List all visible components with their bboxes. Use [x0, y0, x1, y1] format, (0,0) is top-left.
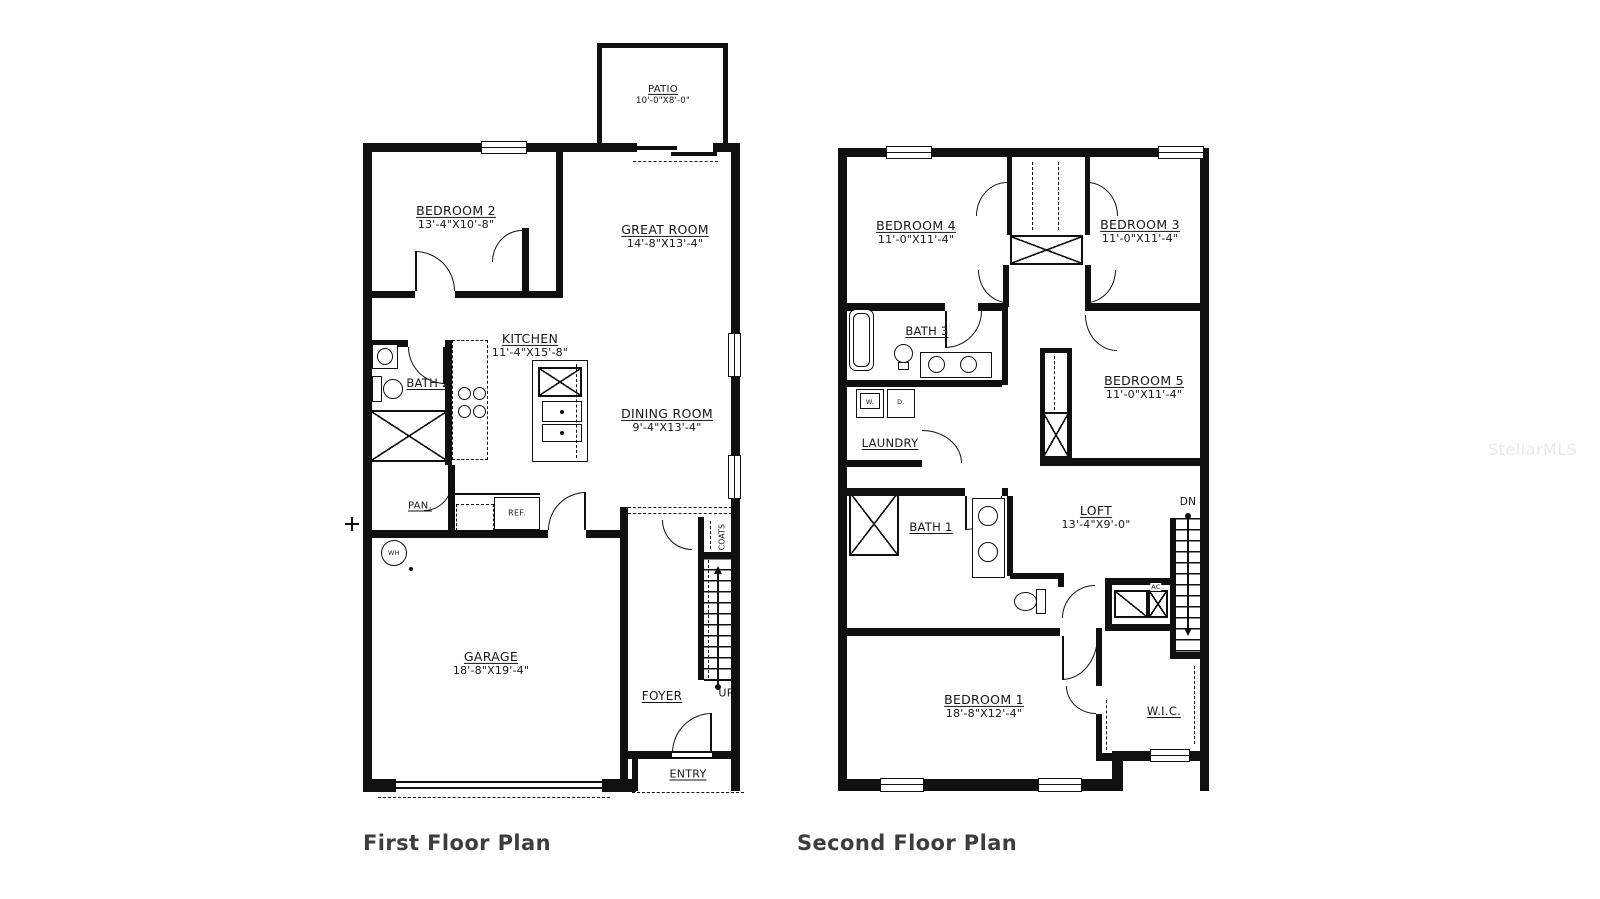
ff-window-greatroom [728, 333, 741, 377]
sf-door-arc-laundry [922, 430, 962, 463]
sf-bath3-sink-2 [960, 356, 977, 373]
sf-door-arc-hall-left [978, 270, 1008, 303]
sf-bed5-closet-xbox [1042, 412, 1070, 458]
ff-room-label-bedroom2: BEDROOM 213'-4"X10'-8" [416, 203, 496, 231]
stellar-mls-watermark: StellarMLS [1488, 440, 1577, 459]
ff-wall-porch-left [632, 753, 638, 791]
ff-slider-panel-1 [633, 146, 677, 150]
ff-room-label-kitchen: KITCHEN11'-4"X15'-8" [492, 331, 568, 359]
sf-door-arc-bedroom4 [976, 182, 1007, 216]
sf-bath3-ped-sink [894, 344, 913, 363]
sf-washer-label: W. [866, 398, 874, 406]
ff-patio-wall-left [597, 43, 602, 148]
sf-wic-rod-dash-left [1106, 700, 1107, 750]
ff-garage-door [396, 781, 602, 789]
ff-island-overhang-dash [576, 364, 577, 458]
sf-stairs-arrow-head [1184, 628, 1192, 636]
ff-room-label-entry: ENTRY [669, 768, 706, 781]
ff-room-label-dining: DINING ROOM9'-4"X13'-4" [621, 406, 713, 434]
sf-bath1-toilet-bowl [1014, 592, 1037, 611]
ff-garage-door-dash [378, 797, 610, 798]
sf-wic-rod-dash-right [1194, 666, 1195, 744]
sf-dryer-label: D. [897, 398, 905, 406]
sf-window-bedroom4 [886, 146, 932, 159]
ff-island-sink-2-drain [560, 431, 564, 435]
sf-wall-bed1-top [847, 628, 1060, 636]
sf-ac-label: AC [1150, 583, 1161, 591]
ff-stairs-arrow-line [717, 574, 719, 686]
sf-wall-left [838, 148, 847, 791]
ff-room-label-great-room: GREAT ROOM14'-8"X13'-4" [621, 222, 709, 250]
ff-door-arc-kitchen-foyer [548, 492, 586, 530]
ff-wall-bed2-closet [522, 228, 529, 291]
ff-bath2-toilet-bowl [383, 379, 403, 399]
sf-wall-ac-bottom [1105, 624, 1175, 631]
ff-coats-label: COATS [718, 524, 727, 550]
ff-counter-dashed [456, 504, 494, 531]
sf-wall-wic-left-a [1096, 628, 1102, 686]
ff-room-label-pantry: PAN. [408, 501, 432, 512]
ff-wall-left [363, 143, 372, 791]
sf-wall-vanity1 [1007, 496, 1013, 576]
sf-wall-hall-bottom-stub [978, 303, 1008, 311]
sf-room-label-bedroom3: BEDROOM 311'-0"X11'-4" [1100, 217, 1180, 245]
ff-entry-threshold [672, 751, 712, 759]
ff-wall-foyer-left [620, 507, 628, 791]
ff-window-bedroom2 [481, 141, 527, 154]
ff-wall-bed2-great [556, 152, 563, 298]
ff-room-label-bath2: BATH 2 [406, 376, 449, 390]
ff-porch-dash [632, 792, 744, 793]
ff-stove-burner-4 [473, 405, 486, 418]
sf-wall-wic-left-b [1096, 714, 1102, 758]
first-floor-title: First Floor Plan [363, 831, 551, 855]
sf-room-label-bedroom4: BEDROOM 411'-0"X11'-4" [876, 218, 956, 246]
second-floor-title: Second Floor Plan [797, 831, 1017, 855]
sf-wall-bath1-top-b [1002, 488, 1008, 496]
ff-wall-bed2-bottom-b [455, 291, 556, 298]
sf-wall-wic-stub [1096, 753, 1118, 761]
ff-patio-wall-right [723, 43, 728, 148]
sf-bath1-toilet-tank [1036, 589, 1046, 614]
ff-door-arc-bed2-closet [492, 230, 522, 262]
ff-wall-foyer-bottom-b [712, 751, 734, 759]
sf-wall-closet-left [1007, 157, 1012, 235]
ff-wall-top-1 [363, 143, 483, 152]
sf-wall-bed3-bottom [1085, 303, 1205, 311]
ff-wall-bed2-bottom-a [372, 291, 415, 298]
sf-wall-stairs-bottom [1170, 652, 1209, 659]
ff-room-label-foyer: FOYER [642, 689, 682, 703]
sf-room-label-laundry: LAUNDRY [862, 436, 919, 450]
ff-wall-pantry-right [448, 465, 455, 533]
floor-plan-sheet: PATIO 10'-0"X8'-0" [0, 0, 1600, 899]
ff-door-leaf-bedroom2 [415, 251, 417, 291]
ff-door-arc-coats [662, 520, 692, 550]
ff-wall-bottom-left [363, 779, 396, 792]
ff-bath2-sink-bowl [377, 348, 393, 365]
ff-island-sink-1-drain [560, 410, 564, 414]
sf-room-label-bedroom1: BEDROOM 118'-8"X12'-4" [944, 692, 1024, 720]
sf-door-arc-bath3 [945, 311, 982, 348]
ff-opening-dash-1 [628, 507, 732, 508]
ff-wall-garage-top-a [363, 530, 548, 538]
sf-window-wic [1150, 749, 1190, 762]
ff-bath2-toilet-tank [372, 376, 382, 402]
sf-door-arc-bedroom3 [1087, 182, 1118, 216]
sf-ac-platform [1114, 590, 1148, 618]
sf-wall-toilet-top [1010, 573, 1060, 579]
sf-bed5-closet-dash [1054, 356, 1055, 410]
ff-wall-top-2 [525, 143, 637, 152]
ff-stairs-arrow-head [714, 566, 722, 574]
ff-wall-bottom-pier [602, 779, 636, 792]
sf-wall-toilet-right [1058, 573, 1064, 587]
ff-door-leaf-kitchen-foyer [584, 492, 586, 530]
ff-water-heater-label: WH [388, 549, 400, 557]
ff-stove-burner-3 [458, 405, 471, 418]
ff-kitchen-counter [452, 340, 488, 460]
ff-stairs-rail-dash [708, 560, 709, 678]
sf-wall-laundry-bottom [847, 460, 922, 467]
sf-closet-door-dash-1 [1032, 162, 1033, 230]
ff-door-arc-bedroom2 [415, 251, 455, 291]
sf-bath3-tub-inner [853, 313, 870, 367]
ff-slider-panel-2 [671, 152, 717, 156]
ff-up-label: UP [718, 687, 733, 700]
sf-bath1-sink-2 [978, 542, 998, 562]
sf-door-arc-bedroom1 [1062, 636, 1098, 680]
sf-wall-laundry-top [847, 380, 1002, 387]
sf-door-leaf-bath1 [965, 496, 967, 530]
sf-room-label-wic: W.I.C. [1147, 704, 1181, 718]
ff-counter-edge [455, 493, 540, 495]
ff-patio-wall-top [597, 43, 728, 48]
sf-stairs-arrow-line [1187, 518, 1189, 630]
sf-door-leaf-bedroom1 [1062, 636, 1064, 680]
ff-floor-drain-dot [409, 567, 413, 571]
ff-opening-dash-2 [628, 513, 732, 514]
sf-wall-ac-top [1105, 578, 1175, 585]
sf-door-arc-bedroom5 [1085, 315, 1117, 351]
sf-window-bedroom1-b [1038, 778, 1082, 792]
sf-room-label-bedroom5: BEDROOM 511'-0"X11'-4" [1104, 373, 1184, 401]
ff-bath2-shower [370, 410, 448, 462]
sf-wall-right [1200, 148, 1209, 791]
sf-wall-bed5-bottom [1040, 458, 1205, 466]
sf-bath1-sink-1 [978, 506, 998, 526]
sf-linen-closet [1010, 235, 1083, 265]
sf-ac-unit [1148, 590, 1168, 618]
ff-plus-mark-v [351, 517, 353, 531]
ff-room-label-garage: GARAGE18'-8"X19'-4" [453, 649, 529, 677]
sf-wall-bath3-right [1002, 311, 1008, 385]
ff-door-leaf-entry [710, 713, 712, 753]
ff-coats-rod-dash [710, 521, 711, 549]
sf-bath3-ped-base [898, 362, 909, 370]
sf-door-arc-wic [1066, 686, 1096, 714]
sf-door-arc-toilet [1062, 585, 1095, 618]
ff-wall-garage-top-b [586, 530, 620, 538]
sf-window-bedroom1-a [880, 778, 924, 792]
sf-room-label-loft: LOFT13'-4"X9'-0" [1061, 503, 1130, 531]
sf-room-label-bath1: BATH 1 [909, 520, 952, 534]
ff-room-label-patio: PATIO 10'-0"X8'-0" [636, 84, 690, 106]
sf-bath3-sink-1 [928, 356, 945, 373]
ff-window-dining [728, 455, 741, 499]
sf-dn-label: DN [1178, 496, 1199, 508]
sf-window-bedroom3 [1158, 146, 1204, 159]
ff-fridge-label: REF. [508, 509, 526, 518]
sf-room-label-bath3: BATH 3 [905, 324, 948, 338]
ff-stove-burner-1 [458, 387, 471, 400]
sf-bath1-shower [849, 492, 899, 556]
ff-stove-burner-2 [473, 387, 486, 400]
sf-door-arc-hall-right [1086, 270, 1116, 303]
ff-slider-dash [633, 161, 718, 162]
sf-closet-door-dash-2 [1058, 162, 1059, 230]
ff-door-arc-entry [672, 713, 712, 753]
